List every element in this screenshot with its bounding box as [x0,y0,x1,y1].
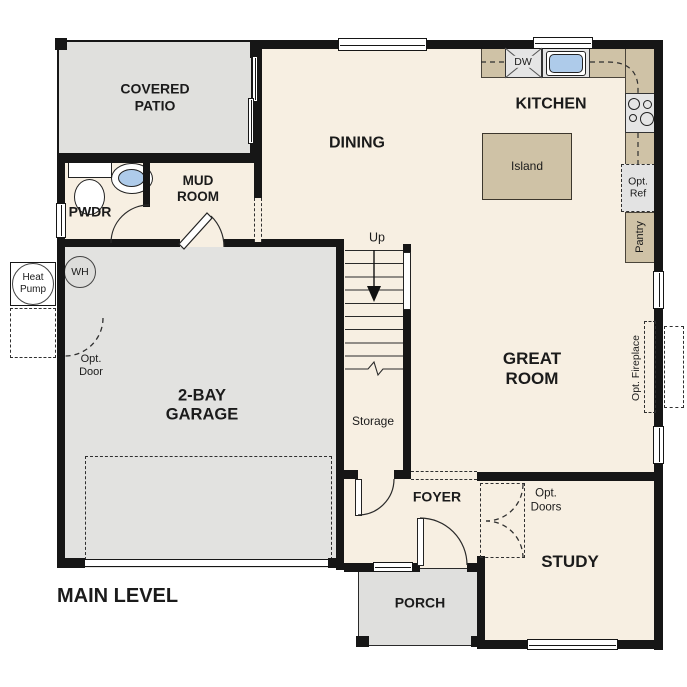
pantry-label: Pantry [634,221,646,253]
optional-door-arc [65,318,103,356]
stair-arrow-head [367,286,381,302]
opt-ref-label: Opt. Ref [628,176,648,201]
plan-title: MAIN LEVEL [57,585,178,609]
opt-doors-label: Opt. Doors [531,487,562,514]
wh-label: WH [71,266,89,278]
great-room-label: GREAT ROOM [503,349,561,389]
counter-dash-right [590,62,638,93]
stair-break-line [345,362,403,375]
heat-pump-label: Heat Pump [20,272,46,296]
foyer-label: FOYER [413,489,461,506]
mud-door-leaf [179,213,212,249]
island-label: Island [511,159,543,173]
mud-door-arc [211,216,224,247]
up-label: Up [369,231,385,246]
storage-label: Storage [352,414,394,428]
covered-patio-label: COVERED PATIO [120,80,189,113]
pwdr-door-arc [111,205,149,243]
optional-doors-arc-top [486,484,523,521]
pwdr-label: PWDR [69,204,112,221]
opt-fireplace-label: Opt. Fireplace [630,335,642,401]
kitchen-label: KITCHEN [515,96,586,115]
front-door-arc [420,518,467,565]
garage-label: 2-BAY GARAGE [166,387,238,426]
dining-label: DINING [329,135,385,154]
opt-door-label: Opt. Door [79,353,103,379]
storage-door-arc [358,479,394,515]
optional-doors-arc-bottom [486,521,523,558]
study-label: STUDY [541,552,599,572]
mud-room-label: MUD ROOM [177,173,219,205]
floor-plan: COVERED PATIO DINING KITCHEN Island MUD … [0,0,687,687]
dw-label: DW [513,56,533,68]
porch-label: PORCH [395,595,446,612]
